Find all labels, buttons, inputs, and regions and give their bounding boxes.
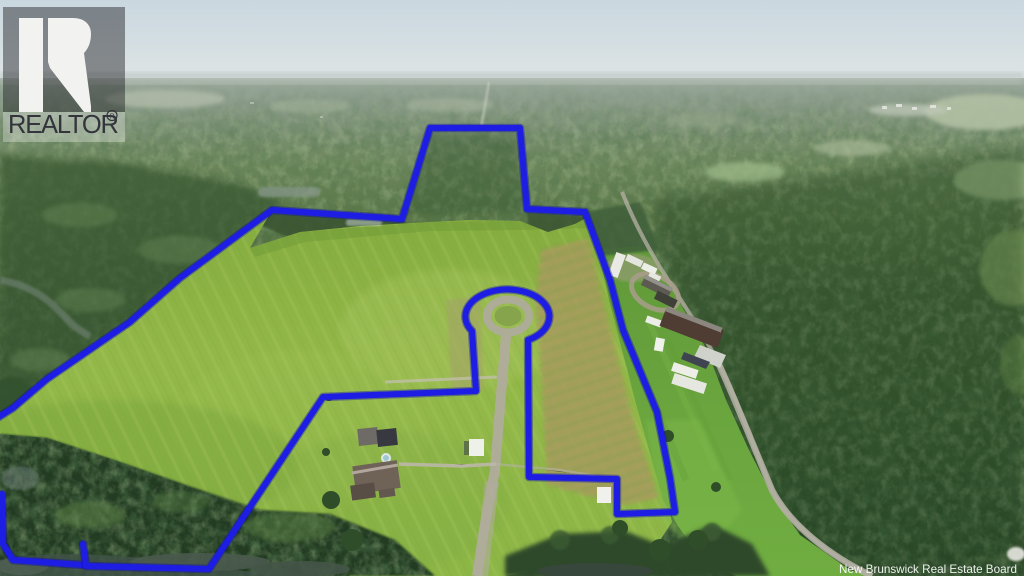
svg-text:REALTOR: REALTOR [8, 111, 118, 139]
svg-text:New Brunswick Real Estate Boar: New Brunswick Real Estate Board [839, 563, 1017, 576]
svg-text:R: R [110, 113, 115, 120]
